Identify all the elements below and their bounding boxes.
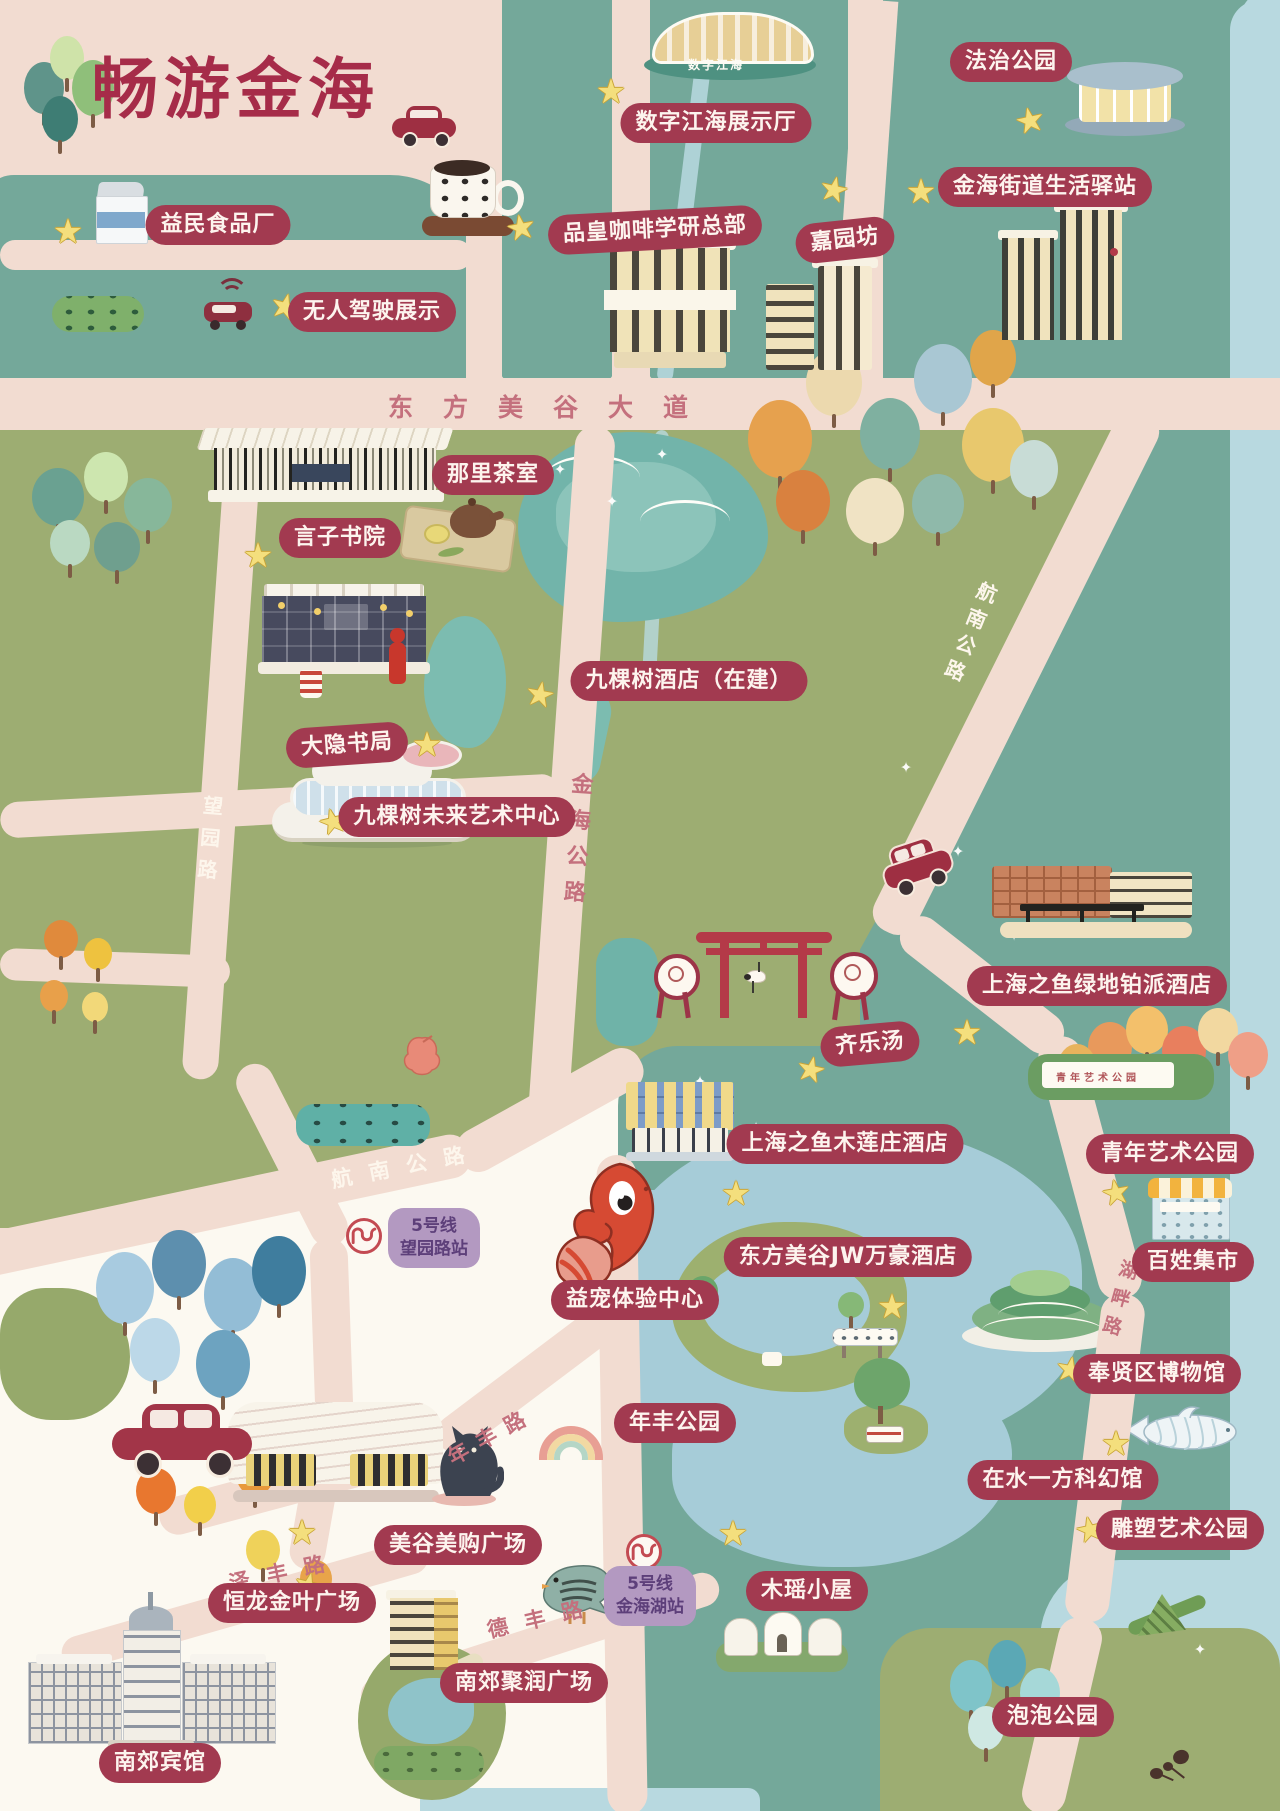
poi-label-nine-trees-hotel: 九棵树酒店（在建） [570,661,807,701]
poi-label-pet-experience-center: 益宠体验中心 [551,1280,719,1320]
wetland-rail-line [640,500,730,543]
ds-hall-sign: 数字江海 [688,56,744,73]
metro-station-wangyuan: 5号线 望园路站 [388,1208,480,1268]
poi-label-driverless-demo: 无人驾驶展示 [288,292,456,332]
star-icon: ★ [952,1016,982,1050]
star-icon: ★ [1101,1427,1131,1461]
tree-icon [50,520,90,566]
zongzi-icon [1112,1580,1212,1642]
milk-carton-icon [88,182,154,246]
map-title: 畅游金海 [92,36,380,132]
star-icon: ★ [906,175,936,209]
river-right-bulge [1240,0,1280,320]
dinosaur-mascot-icon [546,1158,672,1290]
star-icon: ★ [718,1517,748,1551]
poi-label-meigu-mall: 美谷美购广场 [374,1525,542,1565]
youth-art-park-sign-text: 青年艺术公园 [1056,1069,1140,1084]
orange-tree-icon [44,920,78,958]
island-pavilion-icon [762,1352,782,1366]
teal-tree-icon [950,1660,992,1712]
sparkle-icon: ✦ [1194,1643,1207,1658]
autumn-tree-icon [860,398,920,470]
star-icon: ★ [877,1290,907,1324]
fish-sculpture-icon [1122,1404,1240,1456]
tree-icon [124,478,172,532]
orange-tree-icon [82,992,108,1022]
autumn-tree-icon [1010,440,1058,498]
poi-label-nali-tea-room: 那里茶室 [432,455,554,495]
poi-label-jinhai-life-station: 金海街道生活驿站 [938,167,1152,207]
berry-bush-icon [296,1104,430,1146]
poi-label-digital-jianghai-hall: 数字江海展示厅 [620,103,811,143]
poi-label-muyao-cabin: 木瑶小屋 [746,1571,868,1611]
star-icon: ★ [596,75,626,109]
blue-tree-icon [196,1330,250,1398]
red-car-icon [392,104,460,148]
metro-line-label: 5号线 [411,1216,457,1236]
bush-row-icon [52,296,144,332]
qiletang-torii-icon [648,928,878,1028]
metro-station-label: 金海湖站 [616,1597,684,1617]
illustrated-tour-map: 东方美谷大道 金海公路 航南公路 航南公路 望园路 年丰路 泽丰路 德丰路 湖畔… [0,0,1280,1811]
nanjiao-hotel-building [28,1606,276,1756]
rainbow-icon [538,1424,604,1460]
pinhuang-building [604,244,736,374]
star-icon: ★ [721,1177,751,1211]
lake-tree-island [840,1358,932,1466]
life-station-towers [998,208,1130,344]
metro-line-label: 5号线 [627,1574,673,1594]
tree-icon [32,468,84,526]
metro-station-jinhaihu: 5号线 金海湖站 [604,1566,696,1626]
poi-label-henglong-plaza: 恒龙金叶广场 [208,1583,376,1623]
poi-label-jurun-plaza: 南郊聚润广场 [440,1663,608,1703]
poi-label-nanjiao-hotel: 南郊宾馆 [99,1743,221,1783]
star-icon: ★ [287,1516,317,1550]
autumn-tree-icon [184,1486,216,1524]
sparkle-icon: ✦ [606,495,619,510]
greenland-hotel-building [992,858,1202,946]
orange-tree-icon [40,980,68,1012]
star-icon: ★ [53,215,83,249]
muyao-huts-icon [716,1608,848,1678]
poi-label-mulianzhuang-hotel: 上海之鱼木莲庄酒店 [726,1124,963,1164]
star-icon: ★ [1098,1174,1134,1213]
autumn-tree-icon [914,344,972,414]
mulianzhuang-hotel-building [626,1082,734,1164]
star-icon: ★ [522,676,558,715]
orange-tree-icon [84,938,112,970]
dayin-bookstore-building [258,584,434,700]
tree-icon [84,452,128,502]
poi-label-fazhi-park: 法治公园 [950,42,1072,82]
poi-label-yimin-food-factory: 益民食品厂 [145,205,290,245]
poi-label-fengxian-museum: 奉贤区博物馆 [1073,1354,1241,1394]
poi-label-youth-art-park: 青年艺术公园 [1086,1134,1254,1174]
teal-tree-icon [988,1640,1026,1688]
autumn-tree-icon [748,400,812,478]
fazhi-pavilion [1065,56,1185,138]
poi-label-sculpture-park: 雕塑艺术公园 [1096,1510,1264,1550]
red-car-icon [112,1402,260,1472]
meigu-mall-building [228,1402,444,1514]
island-tree-icon [838,1292,864,1318]
poi-label-jw-marriott: 东方美谷JW万豪酒店 [724,1237,972,1277]
driverless-car-icon [200,278,256,332]
metro-logo-icon [346,1218,382,1254]
poi-label-yanzi-academy: 言子书院 [279,518,401,558]
sparkle-icon: ✦ [554,463,567,478]
road-label-meigu-avenue: 东方美谷大道 [388,388,718,424]
blue-tree-icon [252,1236,306,1306]
autumn-tree-icon [776,470,830,532]
star-icon: ★ [503,209,539,248]
poi-label-nine-trees-art-center: 九棵树未来艺术中心 [338,797,575,837]
blue-tree-icon [96,1252,154,1324]
ant-icon [1146,1742,1206,1788]
metro-station-label: 望园路站 [400,1239,468,1259]
poi-label-scifi-hall: 在水一方科幻馆 [967,1460,1158,1500]
maple-leaf-icon [402,1034,442,1080]
baixing-market-shop [1148,1172,1232,1244]
sparkle-icon: ✦ [900,761,913,776]
poi-label-nianfeng-park: 年丰公园 [614,1403,736,1443]
jiayuanfang-buildings [766,256,876,376]
blue-tree-icon [130,1318,180,1382]
autumn-tree-icon [1228,1032,1268,1078]
autumn-tree-icon [912,474,964,534]
metro-logo-icon [626,1534,662,1570]
tea-set-icon [402,490,514,568]
poi-label-baixing-market: 百姓集市 [1132,1242,1254,1282]
tree-icon [94,522,140,572]
poi-label-dayin-bookstore: 大隐书局 [285,721,410,769]
star-icon: ★ [243,539,273,573]
autumn-tree-icon [846,478,904,544]
blue-tree-icon [152,1230,206,1298]
poi-label-paopao-park: 泡泡公园 [992,1697,1114,1737]
sparkle-icon: ✦ [656,448,669,463]
poi-label-greenland-hotel: 上海之鱼绿地铂派酒店 [967,966,1227,1006]
tree-icon [42,96,78,142]
star-icon: ★ [412,728,442,762]
